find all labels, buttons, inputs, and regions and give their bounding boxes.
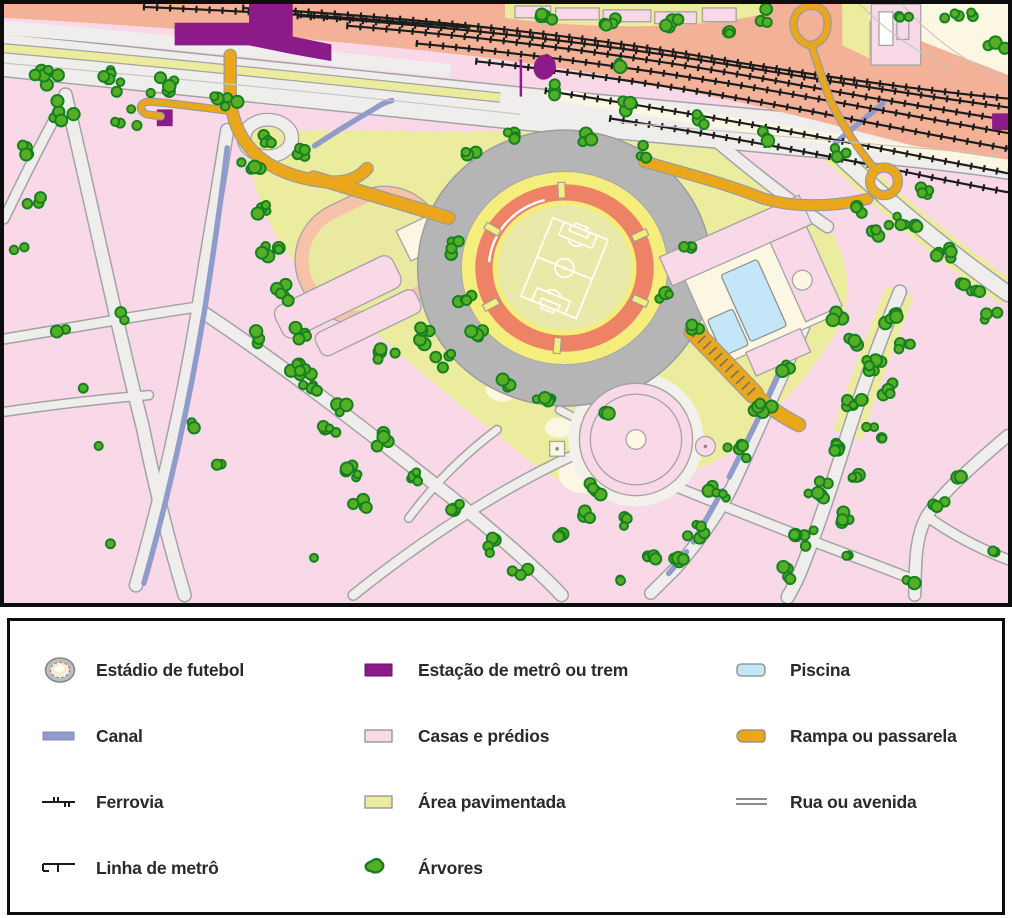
rampa-ou-passarela-icon bbox=[734, 727, 774, 745]
map-frame bbox=[0, 0, 1012, 607]
legend-label: Casas e prédios bbox=[418, 726, 549, 747]
legend-item-canal: Canal bbox=[40, 703, 362, 769]
ferrovia-icon bbox=[40, 793, 80, 811]
map-legend: Estádio de futebol Canal Ferrovia Linha … bbox=[7, 618, 1005, 915]
legend-label: Linha de metrô bbox=[96, 858, 219, 879]
city-map-image bbox=[4, 4, 1008, 603]
legend-label: Árvores bbox=[418, 858, 483, 879]
rua-ou-avenida-icon bbox=[734, 794, 774, 810]
legend-label: Ferrovia bbox=[96, 792, 163, 813]
legend-item-area-pavimentada: Área pavimentada bbox=[362, 769, 734, 835]
legend-item-rua: Rua ou avenida bbox=[734, 769, 1002, 835]
piscina-icon bbox=[734, 661, 774, 679]
arvores-icon bbox=[362, 857, 402, 879]
canal-icon bbox=[40, 728, 80, 744]
legend-item-arvores: Árvores bbox=[362, 835, 734, 901]
legend-label: Estação de metrô ou trem bbox=[418, 660, 628, 681]
legend-item-estacao: Estação de metrô ou trem bbox=[362, 637, 734, 703]
legend-label: Área pavimentada bbox=[418, 792, 566, 813]
legend-label: Rampa ou passarela bbox=[790, 726, 957, 747]
legend-label: Rua ou avenida bbox=[790, 792, 917, 813]
legend-item-linha-de-metro: Linha de metrô bbox=[40, 835, 362, 901]
legend-column-3: Piscina Rampa ou passarela Rua ou avenid… bbox=[734, 637, 1002, 904]
legend-label: Piscina bbox=[790, 660, 850, 681]
legend-item-casas: Casas e prédios bbox=[362, 703, 734, 769]
legend-item-piscina: Piscina bbox=[734, 637, 1002, 703]
legend-item-estadio: Estádio de futebol bbox=[40, 637, 362, 703]
legend-item-rampa: Rampa ou passarela bbox=[734, 703, 1002, 769]
area-pavimentada-icon bbox=[362, 793, 402, 811]
estacao-de-metro-ou-trem-icon bbox=[362, 661, 402, 679]
casas-e-predios-icon bbox=[362, 727, 402, 745]
legend-column-1: Estádio de futebol Canal Ferrovia Linha … bbox=[40, 637, 362, 904]
legend-column-2: Estação de metrô ou trem Casas e prédios… bbox=[362, 637, 734, 904]
linha-de-metro-icon bbox=[40, 859, 80, 877]
legend-empty-row bbox=[734, 835, 1002, 901]
legend-label: Canal bbox=[96, 726, 143, 747]
legend-item-ferrovia: Ferrovia bbox=[40, 769, 362, 835]
legend-label: Estádio de futebol bbox=[96, 660, 244, 681]
estadio-de-futebol-icon bbox=[40, 655, 80, 685]
